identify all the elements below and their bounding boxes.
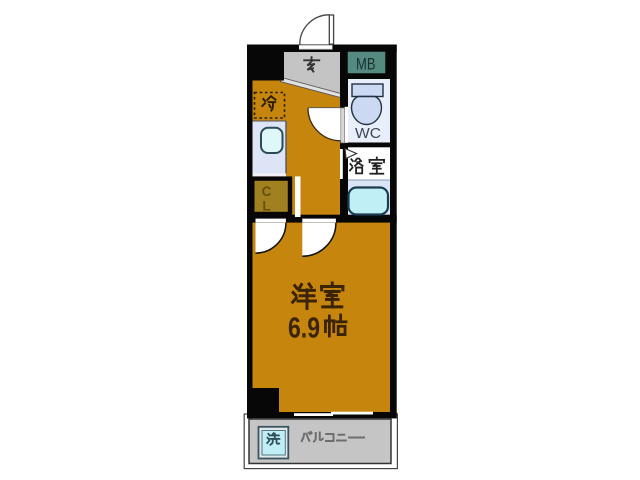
- svg-text:MB: MB: [356, 56, 376, 74]
- svg-text:6.9: 6.9: [288, 313, 320, 345]
- svg-text:C: C: [262, 184, 272, 199]
- svg-text:L: L: [262, 199, 270, 214]
- svg-text:WC: WC: [355, 125, 381, 142]
